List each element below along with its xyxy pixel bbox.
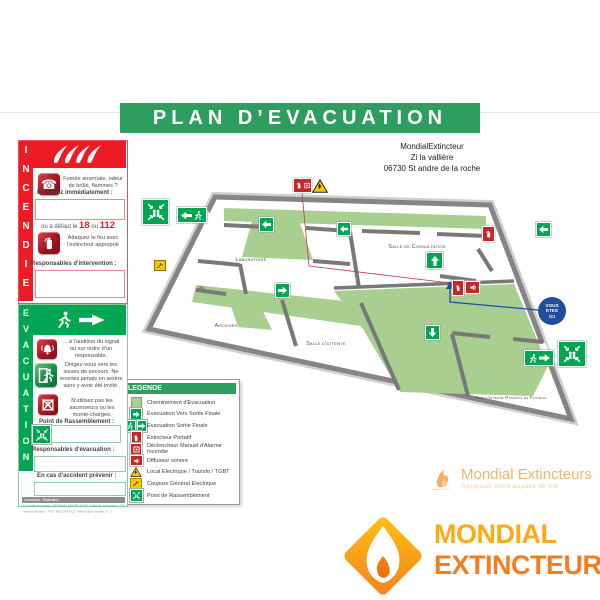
accident-input[interactable]: [34, 482, 126, 496]
extinguisher-icon: [38, 232, 60, 254]
watermark-flame-icon: [428, 466, 458, 492]
evacuation-vertical-label: EVACUATION: [19, 305, 33, 471]
assembly-point-icon: [142, 199, 169, 225]
electrical-warning-icon: [125, 467, 147, 477]
accident-label: En cas d'accident prévenir :: [37, 473, 123, 479]
power-cutoff-icon: [154, 260, 166, 271]
smoke-instruction: Fumée anormale, odeur de brûlé, flammes …: [63, 176, 123, 190]
evacuation-plan-poster: PLAN D’EVACUATION MondialExtincteur Zi l…: [0, 0, 600, 600]
legend-item: Cheminement d'Evacuation: [125, 397, 236, 409]
no-elevator-icon: [38, 394, 58, 415]
exit-left-sign-icon: [177, 207, 207, 223]
fine-print-bar: Conception - Réalisation: [22, 497, 125, 503]
assembly-input[interactable]: [51, 425, 121, 443]
room-label: Salle d'attente: [306, 341, 346, 347]
arrow-right-icon: [275, 283, 290, 298]
room-label: Wc: [199, 285, 207, 290]
evacuation-panel: EVACUATION ... à l'audition du signal ou…: [18, 304, 128, 507]
legend-item: Local Electrique / Transfo / TGBT: [125, 467, 236, 479]
watermark-logo: Mondial Extincteurs Sécuriser votre espa…: [428, 466, 592, 492]
sounder-icon: [125, 455, 147, 466]
intervention-label: Responsables d'intervention :: [31, 261, 125, 267]
manual-alarm-icon: [125, 443, 147, 455]
arrow-left-icon: [536, 222, 551, 237]
arrow-up-icon: [426, 252, 443, 269]
legend-item: Evacuation Sortie Finale: [125, 420, 236, 432]
assembly-point-icon: [558, 341, 586, 367]
legend-box: LEGENDE Cheminement d'Evacuation Evacuat…: [121, 379, 240, 505]
extinguisher-icon: [452, 280, 464, 296]
arrow-left-icon: [337, 222, 351, 236]
you-are-here-badge: VOUS ETES ICI: [538, 297, 566, 325]
watermark-name: Mondial Extincteurs: [461, 466, 592, 483]
room-label: Aire d'attente Patients en Fauteuil: [475, 395, 547, 400]
flames-icon: [33, 141, 126, 168]
evacuation-path-swatch: [125, 397, 147, 408]
assembly-point-icon: [125, 489, 147, 502]
notify-input[interactable]: [35, 199, 125, 220]
sounder-icon: [465, 281, 480, 294]
number-112: 112: [100, 220, 115, 231]
watermark-tagline: Sécuriser votre espace de vie: [461, 483, 592, 490]
extinguisher-icon: [125, 431, 147, 444]
intervention-input[interactable]: [35, 270, 125, 298]
room-label: Archives: [215, 323, 238, 329]
legend-item: Coupure Général Electrique: [125, 478, 236, 490]
notify-label: Prévenez immédiatement :: [37, 190, 123, 196]
extinguisher-alarm-icon: [293, 178, 312, 193]
exit-arrow-icon: [125, 408, 147, 420]
exit-door-icon: [35, 363, 57, 387]
fine-print: Conception réalisée : MONDIAL EXTINCTEUR…: [23, 504, 124, 516]
extinguisher-icon: [482, 226, 495, 242]
legend-item: Point de Rassemblement: [125, 490, 236, 502]
room-label: Salle de Consultation: [388, 244, 445, 250]
signal-instruction: ... à l'audition du signal ou sur ordre …: [59, 339, 123, 360]
arrow-left-icon: [259, 217, 274, 232]
exit-right-sign-icon: [524, 350, 554, 366]
legend-title: LEGENDE: [125, 383, 236, 394]
legend-item: Diffuseur sonore: [125, 455, 236, 467]
emergency-numbers: ou à défaut le 18 ou 112: [31, 220, 125, 231]
incendie-panel: INCENDIE ☎ Fumée anormale, odeur de brûl…: [18, 140, 128, 304]
attack-instruction: Attaquez le feu avec l'extincteur approp…: [63, 235, 123, 249]
evac-responsables-input[interactable]: [34, 456, 126, 472]
room-label: Laboratoire: [236, 257, 267, 263]
number-18: 18: [79, 220, 90, 231]
evac-responsables-label: Responsables d'évacuation :: [32, 447, 124, 453]
elevator-instruction: N'utilisez pas les ascenseurs ou les mon…: [61, 398, 123, 419]
legend-item: Déclencheur Manuel d'Alarme Incendie: [125, 443, 236, 455]
exit-runner-icon: [33, 305, 126, 335]
electrical-warning-icon: [312, 179, 328, 193]
legend-item: Evacuation Vers Sortie Finale: [125, 409, 236, 421]
legend-item: Extincteur Portatif: [125, 432, 236, 444]
assembly-point-icon: [32, 425, 51, 444]
exits-instruction: Dirigez-vous vers les issues de secours.…: [59, 362, 123, 390]
arrow-down-icon: [425, 325, 440, 340]
power-cutoff-icon: [125, 478, 147, 489]
alarm-signal-icon: [37, 339, 57, 359]
